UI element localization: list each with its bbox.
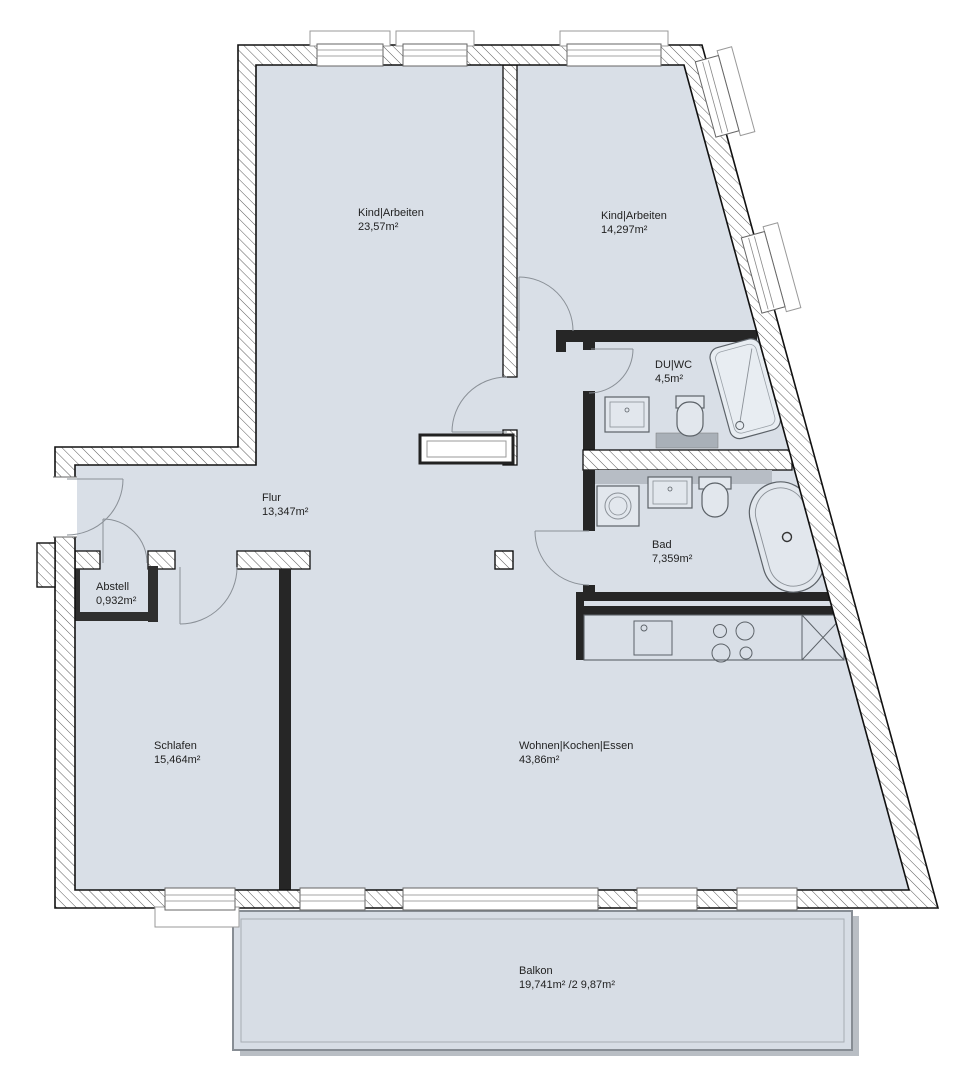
floor-plan-canvas: Kind|Arbeiten 23,57m² Kind|Arbeiten 14,2… [0,0,971,1080]
room-area: 14,297m² [601,224,648,236]
washing-machine [597,486,639,526]
room-name: Flur [262,492,281,504]
room-name: Balkon [519,965,553,977]
radiator-niche [420,435,513,463]
window-top-2 [396,31,474,66]
room-name: DU|WC [655,359,692,371]
exterior-pier [37,543,55,587]
room-name: Kind|Arbeiten [601,210,667,222]
room-area: 23,57m² [358,221,399,233]
window-top-1 [310,31,390,66]
wall-duwc-left-lower [583,391,595,455]
bad-toilet [702,483,728,517]
wall-kind-divider [503,65,517,377]
balcony-shadow-right [852,916,859,1056]
wall-abstell-bottom [73,612,158,621]
room-name: Bad [652,539,672,551]
room-area: 43,86m² [519,754,560,766]
duwc-toilet [677,402,703,436]
room-area: 7,359m² [652,553,693,565]
floor-plan-page: Kind|Arbeiten 23,57m² Kind|Arbeiten 14,2… [0,0,971,1080]
pillar [495,551,513,569]
wall-kitchen-left [576,592,584,660]
room-area: 13,347m² [262,506,309,518]
window-top-3 [560,31,668,66]
room-name: Wohnen|Kochen|Essen [519,740,633,752]
wall-duwc-top [556,330,757,342]
room-area: 0,932m² [96,595,137,607]
room-name: Abstell [96,581,129,593]
wall-stub-right [237,551,310,569]
wall-stub-left [75,551,100,569]
window-schlafen [155,888,239,927]
wall-bad-left-upper [583,470,595,531]
wall-bad-kitchen-2 [578,606,834,615]
room-name: Kind|Arbeiten [358,207,424,219]
room-area: 19,741m² /2 9,87m² [519,979,615,991]
wall-bad-kitchen-1 [578,592,830,601]
wall-duwc-top-stub [556,342,566,352]
room-name: Schlafen [154,740,197,752]
wall-duwc-bad [583,450,792,470]
bad-washbasin [648,477,692,508]
wall-schlafen-wohnen [279,569,291,890]
room-area: 4,5m² [655,373,683,385]
room-area: 15,464m² [154,754,201,766]
